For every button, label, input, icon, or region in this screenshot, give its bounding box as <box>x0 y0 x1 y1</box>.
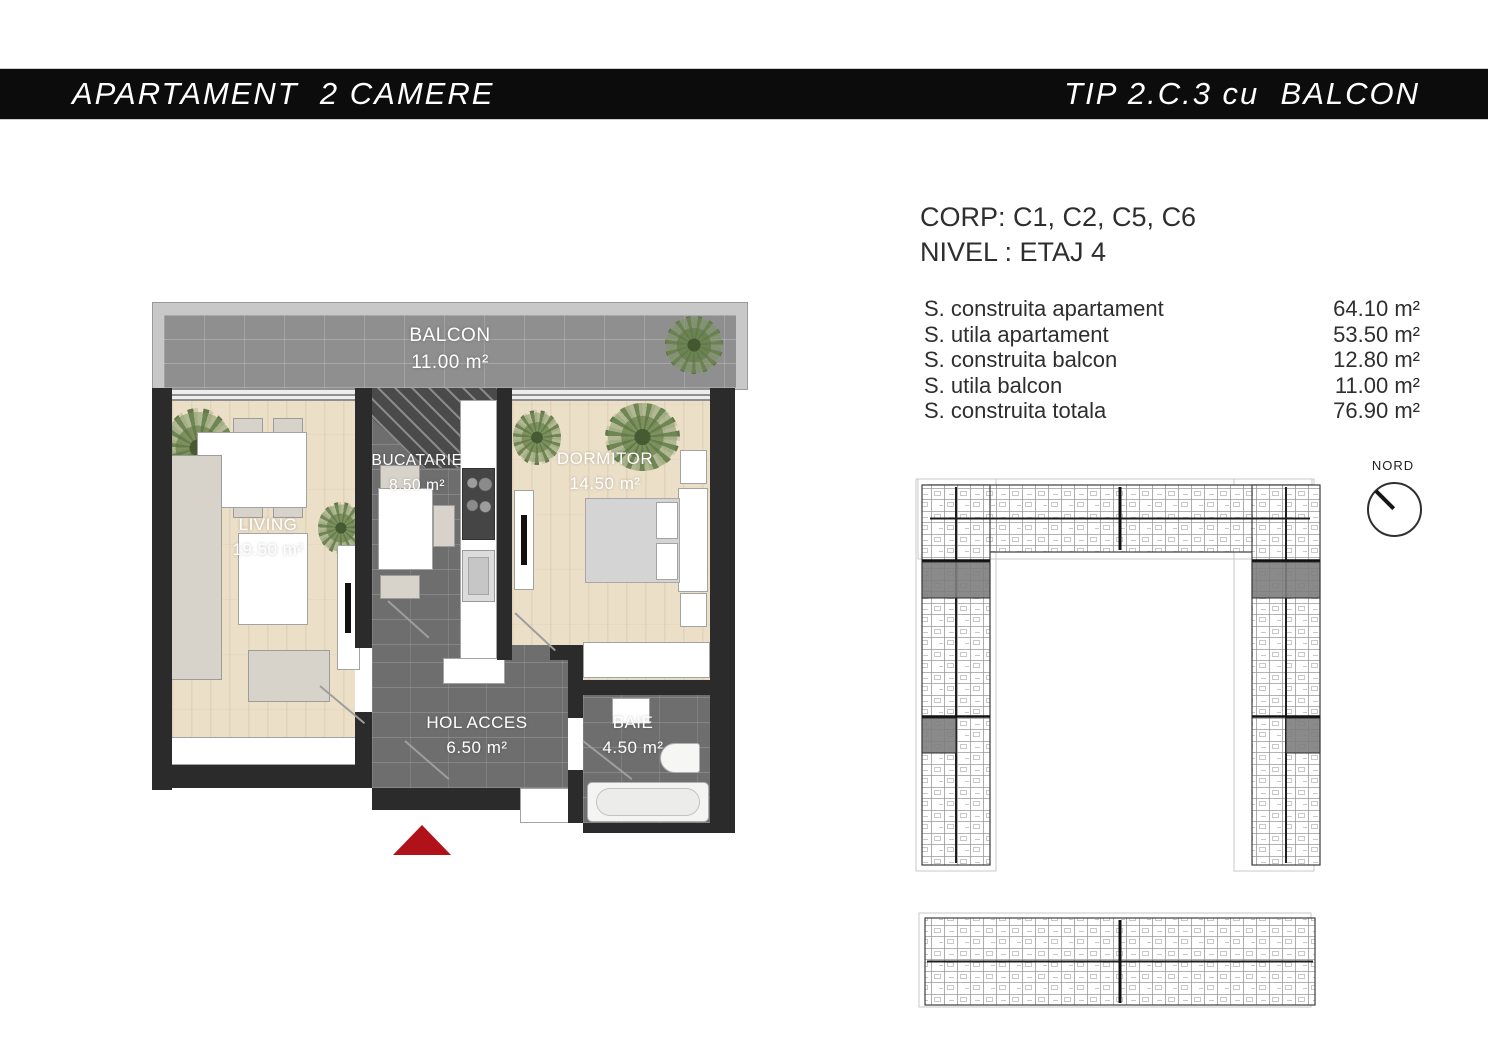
kitchen-chair <box>380 575 420 599</box>
room-name: DORMITOR <box>535 446 675 471</box>
wall <box>152 388 172 790</box>
surface-label: S. construita apartament <box>924 296 1164 322</box>
surface-table: S. construita apartament 64.10 m² S. uti… <box>924 296 1420 424</box>
surface-label: S. utila apartament <box>924 322 1109 348</box>
room-label-baie: BAIE 4.50 m² <box>578 710 688 760</box>
room-area: 4.50 m² <box>578 735 688 760</box>
bedroom-window <box>512 388 710 401</box>
surface-row: S. construita balcon 12.80 m² <box>924 347 1420 373</box>
room-area: 19.50 m² <box>188 537 348 562</box>
wardrobe <box>583 642 710 678</box>
page: APARTAMENT 2 CAMERE TIP 2.C.3 cu BALCON … <box>0 0 1488 1052</box>
surface-row: S. construita apartament 64.10 m² <box>924 296 1420 322</box>
surface-value: 64.10 m² <box>1333 296 1420 322</box>
highlighted-unit <box>1286 718 1320 753</box>
site-plan-building-u <box>922 485 1320 865</box>
room-name: BALCON <box>164 322 736 349</box>
entrance-arrow-icon <box>393 825 451 855</box>
room-label-bucatarie: BUCATARIE 8.50 m² <box>353 448 481 498</box>
kitchen-table <box>378 488 433 570</box>
wall <box>497 388 512 660</box>
wall <box>568 645 583 718</box>
surface-label: S. construita totala <box>924 398 1106 424</box>
room-label-living: LIVING 19.50 m² <box>188 512 348 562</box>
room-name: BUCATARIE <box>353 448 481 473</box>
hall-cabinet <box>443 658 505 684</box>
surface-row: S. utila apartament 53.50 m² <box>924 322 1420 348</box>
highlighted-unit <box>922 562 990 598</box>
tv-cabinet <box>162 737 372 765</box>
wall <box>372 788 520 810</box>
room-area: 11.00 m² <box>164 349 736 376</box>
nivel-line: NIVEL : ETAJ 4 <box>920 235 1196 270</box>
pillow <box>656 502 678 539</box>
nightstand <box>680 593 707 627</box>
header-bar: APARTAMENT 2 CAMERE TIP 2.C.3 cu BALCON <box>0 68 1488 120</box>
room-area: 6.50 m² <box>402 735 552 760</box>
wall <box>710 388 735 833</box>
room-label-dormitor: DORMITOR 14.50 m² <box>535 446 675 496</box>
living-window <box>172 388 355 401</box>
highlighted-unit <box>1252 562 1320 598</box>
wall <box>577 788 583 823</box>
wall <box>355 712 372 765</box>
pillow <box>656 543 678 580</box>
dresser-handle <box>521 515 527 565</box>
info-block: CORP: C1, C2, C5, C6 NIVEL : ETAJ 4 <box>920 200 1196 270</box>
room-name: LIVING <box>188 512 348 537</box>
sofa <box>165 455 222 680</box>
site-plan-building-bottom <box>925 918 1315 1005</box>
wall <box>355 388 372 648</box>
room-label-balcon: BALCON 11.00 m² <box>164 322 736 376</box>
surface-label: S. utila balcon <box>924 373 1062 399</box>
room-area: 8.50 m² <box>353 473 481 498</box>
kitchen-sink <box>462 550 495 602</box>
surface-value: 53.50 m² <box>1333 322 1420 348</box>
wall <box>583 823 735 833</box>
plan-type-title: TIP 2.C.3 cu BALCON <box>1064 76 1420 112</box>
surface-label: S. construita balcon <box>924 347 1117 373</box>
compass-label: NORD <box>1362 458 1424 473</box>
floor-plan: BALCON 11.00 m² LIVING 19.50 m² BUCATARI… <box>150 300 750 860</box>
wall <box>583 680 710 695</box>
bathtub <box>587 782 709 822</box>
highlighted-unit <box>922 718 956 753</box>
surface-value: 11.00 m² <box>1335 373 1420 399</box>
cabinet-handle <box>345 583 351 633</box>
page-title: APARTAMENT 2 CAMERE <box>72 76 494 112</box>
armchair <box>248 650 330 702</box>
surface-row: S. utila balcon 11.00 m² <box>924 373 1420 399</box>
room-name: HOL ACCES <box>402 710 552 735</box>
bed-headboard <box>678 488 708 592</box>
surface-value: 12.80 m² <box>1333 347 1420 373</box>
nightstand <box>680 450 707 484</box>
wall <box>152 765 372 788</box>
surface-value: 76.90 m² <box>1333 398 1420 424</box>
room-area: 14.50 m² <box>535 471 675 496</box>
corp-line: CORP: C1, C2, C5, C6 <box>920 200 1196 235</box>
kitchen-chair <box>433 505 455 547</box>
room-label-hol: HOL ACCES 6.50 m² <box>402 710 552 760</box>
surface-row: S. construita totala 76.90 m² <box>924 398 1420 424</box>
site-plan <box>905 465 1325 1010</box>
room-name: BAIE <box>578 710 688 735</box>
